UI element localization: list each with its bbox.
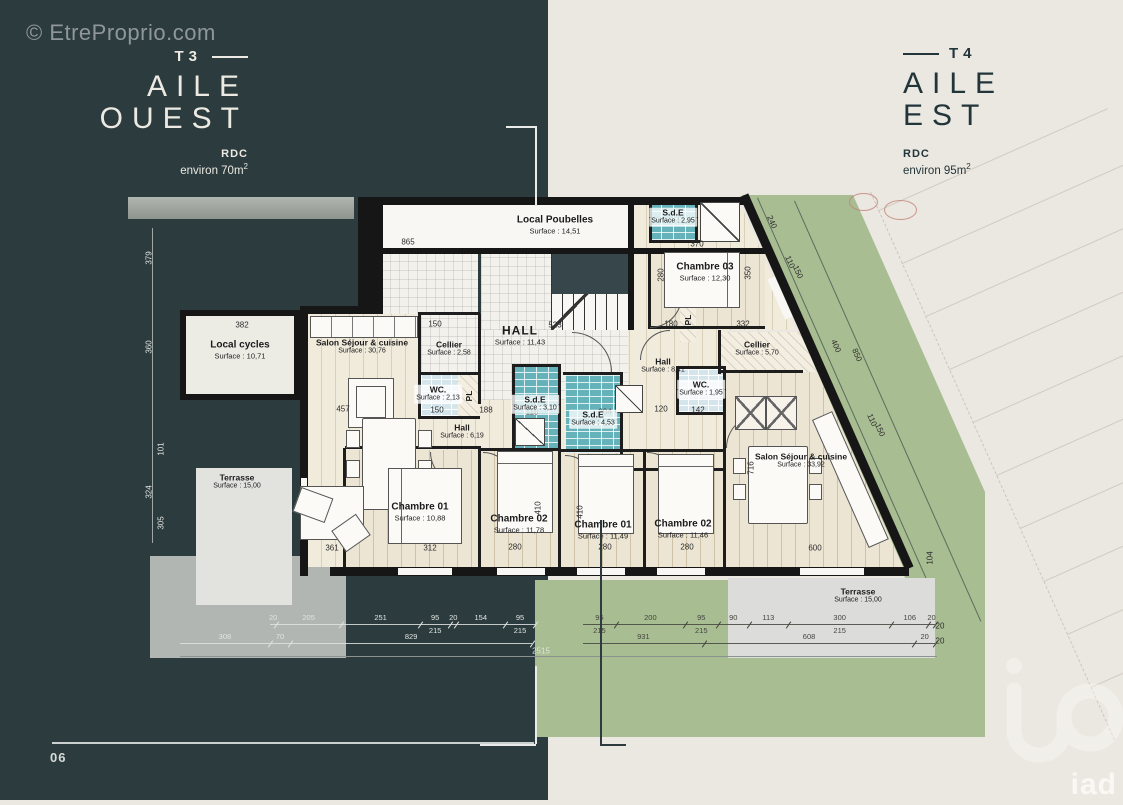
dim-label: 280 — [657, 268, 666, 281]
stair-landing — [481, 252, 551, 330]
west-title-line1: AILE — [58, 71, 248, 103]
dim-label: 312 — [423, 544, 436, 553]
room-label-wc-east: WC.Surface : 1,95 — [677, 380, 725, 399]
crop-mark — [600, 744, 626, 746]
wall-segment — [418, 312, 480, 315]
furniture-chair — [809, 484, 822, 500]
dim-label: 361 — [325, 544, 338, 553]
dim-label: 240 — [765, 214, 779, 230]
crop-mark — [600, 520, 602, 744]
furniture-chair — [733, 458, 746, 474]
west-area: environ 70m — [180, 165, 243, 177]
shower-tray — [615, 385, 643, 413]
shower-tray — [515, 418, 545, 446]
dim-chain-east-1: 95215 200 95215 90 113 300215 106 20 — [583, 618, 935, 630]
dash-decoration — [903, 53, 939, 55]
crop-mark — [535, 666, 537, 744]
crop-mark — [535, 126, 537, 206]
dim-label: 101 — [157, 442, 166, 455]
dim-label: 360 — [145, 340, 154, 353]
iad-wordmark: iad — [1071, 768, 1117, 802]
window — [398, 568, 452, 575]
dim-label: 305 — [157, 516, 166, 529]
floor-plan-page: { "watermark": "© EtreProprio.com", "foo… — [0, 0, 1123, 800]
room-label-chambre01-east: Chambre 01Surface : 11,49 — [574, 520, 631, 541]
room-label-hall-east: HallSurface : 8,41 — [641, 357, 685, 376]
stair-void — [552, 254, 628, 294]
room-label-terrasse-east: TerrasseSurface : 15,00 — [834, 587, 881, 606]
dim-label: 400 — [829, 338, 843, 354]
dim-chain-east-2: 931 608 20 — [583, 637, 935, 649]
dim-total-label: 2515 — [532, 647, 550, 656]
room-label-local-poubelles: Local PoubellesSurface : 14,51 — [517, 215, 593, 236]
wall-segment — [478, 314, 481, 404]
watermark: © EtreProprio.com — [26, 20, 216, 46]
furniture-cabinet — [766, 396, 797, 430]
dim-chain-west-1: 20 205 251 95215 20 154 95215 — [270, 618, 535, 630]
furniture-kitchen-west — [310, 316, 418, 338]
exterior-wall-north — [373, 197, 748, 205]
room-label-sde-east: S.d.ESurface : 4,53 — [569, 410, 617, 429]
page-number: 06 — [50, 750, 66, 765]
room-label-pl-east: PL — [683, 315, 693, 326]
east-type-tag: T4 — [903, 45, 1103, 62]
room-label-salon-west: Salon Séjour & cuisineSurface : 30,76 — [316, 338, 408, 357]
dim-label: 324 — [145, 485, 154, 498]
dash-decoration — [212, 56, 248, 58]
dim-label: 20 — [936, 622, 945, 631]
east-title-block: T4 AILEEST — [903, 45, 1103, 131]
wall-segment — [718, 370, 803, 373]
room-label-chambre02-east: Chambre 02Surface : 11,46 — [654, 519, 711, 540]
dim-label: 350 — [744, 266, 753, 279]
east-title-line2: EST — [903, 100, 1103, 132]
crop-mark — [506, 126, 537, 128]
room-label-chambre01-west: Chambre 01Surface : 10,88 — [391, 502, 448, 523]
wall-segment — [643, 449, 646, 567]
window — [497, 568, 545, 575]
west-floor-label: RDC — [58, 148, 248, 160]
room-label-hall-main: HALLSurface : 11,43 — [495, 323, 545, 346]
room-label-chambre03: Chambre 03Surface : 12,30 — [676, 262, 733, 283]
west-type-tag: T3 — [58, 48, 248, 65]
dim-label: 370 — [690, 240, 703, 249]
dim-label: 280 — [508, 543, 521, 552]
wall-segment — [563, 372, 623, 375]
dim-label: 120 — [654, 405, 667, 414]
dim-label: 142 — [691, 406, 704, 415]
furniture-chair — [346, 430, 360, 448]
retaining-wall — [128, 197, 354, 219]
dim-label: 523 — [548, 321, 561, 330]
wall-segment — [418, 416, 480, 419]
room-label-cellier-west: CellierSurface : 2,58 — [427, 340, 471, 359]
wall-segment — [478, 448, 481, 567]
west-title-line2: OUEST — [58, 103, 248, 135]
dim-label: 457 — [336, 405, 349, 414]
room-label-local-cycles: Local cyclesSurface : 10,71 — [210, 340, 269, 361]
room-label-hall-west: HallSurface : 6,19 — [440, 423, 484, 442]
dim-label: 850 — [850, 347, 864, 363]
window — [800, 568, 864, 575]
exterior-wall-wing-top — [300, 306, 362, 314]
room-label-cellier-east: CellierSurface : 5,70 — [735, 340, 779, 359]
dim-label: 150 — [873, 422, 887, 438]
dim-label: 150 — [430, 406, 443, 415]
furniture-chair — [346, 460, 360, 478]
room-label-sde-west: S.d.ESurface : 3,10 — [511, 395, 559, 414]
iad-logo: iad — [992, 638, 1123, 800]
wall-segment — [418, 372, 480, 375]
east-title-line1: AILE — [903, 68, 1103, 100]
west-title-block: T3 AILEOUEST — [58, 48, 248, 134]
furniture-chair — [418, 430, 432, 448]
storage-box — [700, 202, 740, 242]
dim-label: 382 — [235, 321, 248, 330]
east-floor-label: RDC — [903, 148, 1103, 160]
room-label-pl-west: PL — [464, 391, 474, 402]
dim-label: 188 — [479, 406, 492, 415]
dim-label: 104 — [926, 551, 935, 564]
dim-label: 865 — [401, 238, 414, 247]
east-floor-block: RDC environ 95m2 — [903, 148, 1103, 177]
wall-segment — [723, 412, 726, 567]
room-label-chambre02-west: Chambre 02Surface : 11,78 — [490, 514, 547, 535]
footer-rule — [52, 742, 534, 744]
wall-center — [628, 203, 634, 330]
dim-label: 280 — [680, 543, 693, 552]
room-label-wc-west: WC.Surface : 2,13 — [414, 385, 462, 404]
furniture-cabinet — [735, 396, 766, 430]
dim-label: 150 — [428, 320, 441, 329]
dim-label: 150 — [791, 264, 805, 280]
wall-poubelles-south — [373, 248, 633, 254]
room-label-sde-north: S.d.ESurface : 2,95 — [649, 208, 697, 227]
dim-label: 180 — [664, 320, 677, 329]
furniture-chair — [733, 484, 746, 500]
window — [657, 568, 705, 575]
east-area: environ 95m — [903, 165, 966, 177]
west-floor-block: RDC environ 70m2 — [58, 148, 248, 177]
room-label-salon-east: Salon Séjour & cuisineSurface : 33,92 — [755, 452, 847, 471]
wall-segment — [512, 364, 561, 367]
wall-segment — [718, 330, 721, 374]
entry-floor — [381, 254, 478, 316]
dim-label: 20 — [936, 637, 945, 646]
dim-chain-west-2: 308 70 829 — [180, 637, 532, 649]
wall-pier — [358, 197, 383, 314]
dim-total-line — [180, 656, 937, 657]
furniture-stove-west — [356, 386, 386, 418]
dim-label: 332 — [736, 320, 749, 329]
room-label-terrasse-west: TerrasseSurface : 15,00 — [213, 473, 260, 492]
dim-label: 410 — [576, 505, 585, 518]
dim-label: 379 — [145, 251, 154, 264]
dim-label: 600 — [808, 544, 821, 553]
crop-mark — [480, 744, 536, 746]
